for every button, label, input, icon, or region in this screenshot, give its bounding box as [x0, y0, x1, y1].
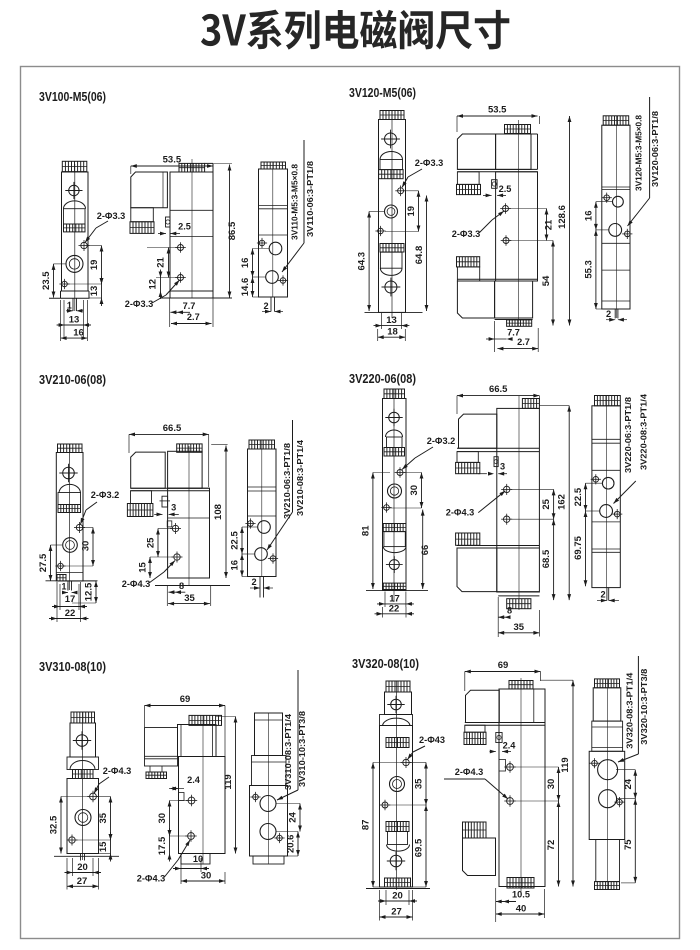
svg-text:27.5: 27.5: [38, 553, 49, 572]
svg-text:20: 20: [77, 862, 88, 873]
svg-text:54: 54: [541, 275, 552, 286]
svg-text:3V120-06:3-PT1/8: 3V120-06:3-PT1/8: [650, 111, 660, 187]
svg-text:35: 35: [414, 778, 425, 789]
svg-text:24: 24: [288, 812, 299, 823]
svg-text:27: 27: [77, 876, 88, 887]
svg-text:19: 19: [89, 260, 100, 271]
svg-text:2: 2: [600, 590, 605, 600]
svg-text:8: 8: [507, 606, 512, 616]
svg-text:2-Φ3.3: 2-Φ3.3: [452, 229, 480, 239]
svg-text:2-Φ3.3: 2-Φ3.3: [125, 299, 153, 309]
svg-text:2.7: 2.7: [517, 337, 530, 347]
svg-text:3V110-M5:3-M5×0.8: 3V110-M5:3-M5×0.8: [290, 164, 300, 240]
svg-text:30: 30: [157, 813, 168, 824]
svg-text:35: 35: [184, 593, 195, 604]
svg-text:2-Φ3.3: 2-Φ3.3: [415, 158, 443, 168]
svg-text:2.5: 2.5: [499, 184, 512, 194]
svg-text:14.6: 14.6: [240, 278, 251, 297]
svg-text:69.5: 69.5: [414, 838, 425, 857]
svg-text:21: 21: [156, 257, 167, 268]
svg-text:19: 19: [406, 206, 417, 217]
svg-text:10: 10: [193, 854, 203, 864]
svg-text:22: 22: [65, 608, 76, 619]
svg-text:22.5: 22.5: [230, 531, 241, 550]
svg-text:15: 15: [138, 562, 149, 573]
svg-text:30: 30: [201, 871, 212, 882]
svg-text:27: 27: [391, 907, 402, 918]
svg-text:75: 75: [623, 839, 634, 850]
svg-text:68.5: 68.5: [541, 549, 552, 568]
svg-text:66: 66: [420, 545, 431, 556]
svg-text:2-Φ3.3: 2-Φ3.3: [97, 211, 125, 221]
svg-text:15: 15: [98, 841, 109, 852]
svg-text:1: 1: [62, 582, 67, 592]
svg-text:3V320-10:3-PT3/8: 3V320-10:3-PT3/8: [639, 668, 649, 744]
svg-text:3V120-M5(06): 3V120-M5(06): [349, 85, 416, 100]
svg-text:3: 3: [171, 503, 176, 513]
svg-text:2-Φ4.3: 2-Φ4.3: [446, 508, 474, 518]
svg-text:20.6: 20.6: [286, 835, 297, 854]
svg-text:55.3: 55.3: [583, 260, 594, 279]
svg-text:35: 35: [514, 622, 525, 633]
svg-text:3V220-08:3-PT1/4: 3V220-08:3-PT1/4: [639, 394, 649, 470]
svg-text:35: 35: [98, 812, 109, 823]
svg-text:2-Φ4.3: 2-Φ4.3: [455, 767, 483, 777]
svg-text:66.5: 66.5: [163, 423, 182, 434]
svg-text:3V320-08(10): 3V320-08(10): [352, 656, 419, 671]
svg-text:13: 13: [89, 286, 100, 297]
svg-text:3V320-08:3-PT1/4: 3V320-08:3-PT1/4: [625, 672, 635, 748]
svg-text:3V210-06(08): 3V210-06(08): [39, 372, 106, 387]
svg-text:2-Φ3.2: 2-Φ3.2: [91, 490, 119, 500]
svg-text:3V220-06:3-PT1/8: 3V220-06:3-PT1/8: [623, 397, 633, 473]
svg-text:1: 1: [67, 301, 72, 311]
svg-text:2: 2: [606, 309, 611, 319]
svg-text:64.8: 64.8: [414, 246, 425, 265]
svg-text:25: 25: [541, 498, 552, 509]
svg-text:2: 2: [263, 301, 268, 311]
svg-text:3V310-08(10): 3V310-08(10): [39, 659, 106, 674]
svg-text:128.6: 128.6: [557, 205, 568, 229]
svg-text:8: 8: [179, 581, 184, 591]
svg-text:2-Φ43: 2-Φ43: [419, 735, 445, 745]
svg-text:3V220-06(08): 3V220-06(08): [349, 371, 416, 386]
svg-text:69: 69: [498, 660, 509, 671]
svg-text:3V310-08:3-PT1/4: 3V310-08:3-PT1/4: [283, 714, 293, 790]
svg-text:2.7: 2.7: [187, 312, 200, 322]
svg-text:12.5: 12.5: [84, 582, 95, 601]
svg-text:119: 119: [223, 774, 234, 789]
svg-text:16: 16: [240, 258, 251, 269]
svg-text:3V110-06:3-PT1/8: 3V110-06:3-PT1/8: [305, 161, 315, 237]
svg-text:162: 162: [557, 494, 568, 510]
svg-text:87: 87: [361, 820, 372, 831]
svg-text:64.3: 64.3: [357, 252, 368, 271]
svg-text:17.5: 17.5: [157, 836, 168, 855]
svg-text:72: 72: [546, 840, 557, 851]
svg-text:20: 20: [392, 891, 403, 902]
svg-text:30: 30: [409, 485, 420, 496]
svg-text:21: 21: [544, 219, 555, 230]
svg-text:10.5: 10.5: [512, 890, 530, 900]
svg-text:2.4: 2.4: [503, 741, 517, 751]
svg-text:13: 13: [69, 315, 80, 326]
svg-text:3V100-M5(06): 3V100-M5(06): [39, 89, 106, 104]
svg-text:30: 30: [546, 779, 557, 790]
svg-text:3V210-06:3-PT1/8: 3V210-06:3-PT1/8: [282, 443, 292, 519]
svg-text:2-Φ4.3: 2-Φ4.3: [103, 766, 131, 776]
svg-text:3: 3: [500, 462, 505, 472]
svg-text:69: 69: [180, 694, 191, 705]
svg-text:3V210-08:3-PT1/4: 3V210-08:3-PT1/4: [295, 440, 305, 516]
svg-text:17: 17: [65, 594, 76, 605]
svg-text:86.5: 86.5: [227, 221, 238, 240]
svg-text:25: 25: [146, 537, 157, 548]
svg-text:2: 2: [251, 577, 256, 587]
svg-text:2.5: 2.5: [178, 222, 191, 232]
svg-text:18: 18: [387, 327, 398, 338]
svg-text:7.7: 7.7: [507, 328, 520, 338]
svg-text:2-Φ4.3: 2-Φ4.3: [122, 579, 150, 589]
svg-text:16: 16: [230, 560, 241, 571]
svg-text:30: 30: [81, 541, 92, 552]
svg-text:69.75: 69.75: [573, 535, 584, 559]
svg-text:22: 22: [389, 604, 400, 615]
svg-text:108: 108: [213, 504, 224, 520]
svg-text:2.4: 2.4: [187, 775, 201, 785]
svg-text:13: 13: [386, 315, 397, 326]
svg-text:66.5: 66.5: [489, 384, 508, 395]
svg-text:3V120-M5:3-M5×0.8: 3V120-M5:3-M5×0.8: [634, 115, 644, 191]
svg-text:2-Φ3.2: 2-Φ3.2: [427, 436, 455, 446]
svg-text:32.5: 32.5: [49, 815, 60, 834]
svg-text:81: 81: [360, 525, 371, 536]
svg-text:119: 119: [560, 757, 571, 772]
svg-text:53.5: 53.5: [488, 105, 507, 116]
svg-text:2-Φ4.3: 2-Φ4.3: [137, 874, 165, 884]
svg-text:7.7: 7.7: [183, 301, 196, 311]
svg-text:40: 40: [516, 904, 527, 915]
svg-text:23.5: 23.5: [41, 271, 52, 290]
svg-text:24: 24: [623, 778, 634, 789]
svg-text:16: 16: [583, 211, 594, 222]
svg-text:12: 12: [148, 279, 159, 290]
svg-text:16: 16: [73, 328, 84, 339]
svg-text:22.5: 22.5: [573, 487, 584, 506]
